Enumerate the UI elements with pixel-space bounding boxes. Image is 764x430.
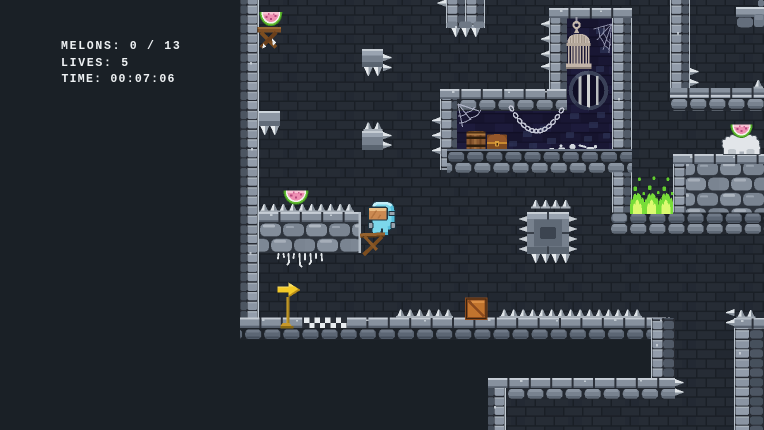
svg-text:LIVES: 5: LIVES: 5 [61,57,130,70]
svg-text:TIME: 00:07:06: TIME: 00:07:06 [62,73,176,86]
svg-text:MELONS: 0 / 13: MELONS: 0 / 13 [61,40,181,53]
